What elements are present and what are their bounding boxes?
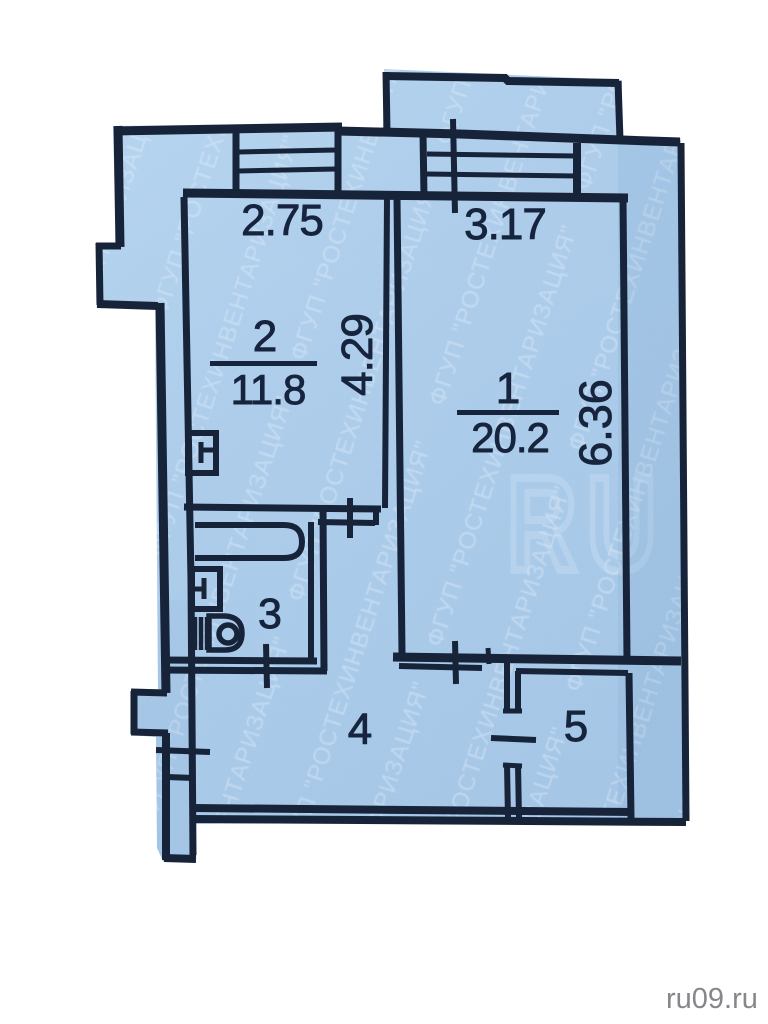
svg-text:3.17: 3.17 [464, 200, 546, 249]
svg-text:1: 1 [496, 364, 520, 413]
svg-text:11.8: 11.8 [231, 366, 306, 413]
svg-text:3: 3 [258, 590, 282, 638]
svg-text:6.36: 6.36 [570, 379, 621, 467]
svg-text:4: 4 [348, 705, 372, 754]
svg-text:4.29: 4.29 [333, 314, 382, 396]
svg-text:20.2: 20.2 [471, 414, 549, 461]
svg-text:2.75: 2.75 [241, 196, 323, 245]
svg-text:5: 5 [564, 702, 588, 751]
svg-text:ru09.ru: ru09.ru [666, 983, 758, 1015]
svg-text:2: 2 [253, 312, 277, 361]
